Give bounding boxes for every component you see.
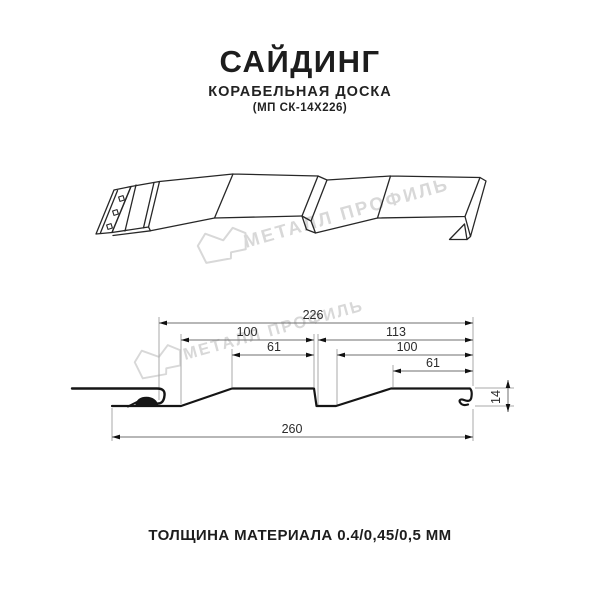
- dim-label-right-113: 113: [386, 325, 406, 339]
- product-drawing-page: САЙДИНГ КОРАБЕЛЬНАЯ ДОСКА (МП СК-14Х226)…: [0, 0, 600, 600]
- dim-label-right-100: 100: [397, 340, 418, 354]
- watermark-text-upper: МЕТАЛЛ ПРОФИЛЬ: [241, 173, 451, 252]
- dim-label-left-61: 61: [267, 340, 281, 354]
- thickness-note: ТОЛЩИНА МАТЕРИАЛА 0.4/0,45/0,5 ММ: [0, 527, 600, 544]
- dim-label-left-100: 100: [237, 325, 258, 339]
- dim-label-right-61: 61: [426, 356, 440, 370]
- dim-label-height-14: 14: [489, 390, 503, 404]
- dim-label-total-226: 226: [303, 308, 324, 322]
- cross-section-outline: [112, 389, 472, 407]
- technical-drawing-canvas: МЕТАЛЛ ПРОФИЛЬ МЕТАЛЛ ПРОФИЛЬ: [0, 0, 600, 600]
- dim-label-overall-260: 260: [282, 422, 303, 436]
- crest-face-1: [215, 174, 319, 218]
- dimension-arrows: [112, 321, 510, 440]
- extension-lines: [112, 317, 514, 441]
- metal-profil-logo-icon: [133, 344, 183, 380]
